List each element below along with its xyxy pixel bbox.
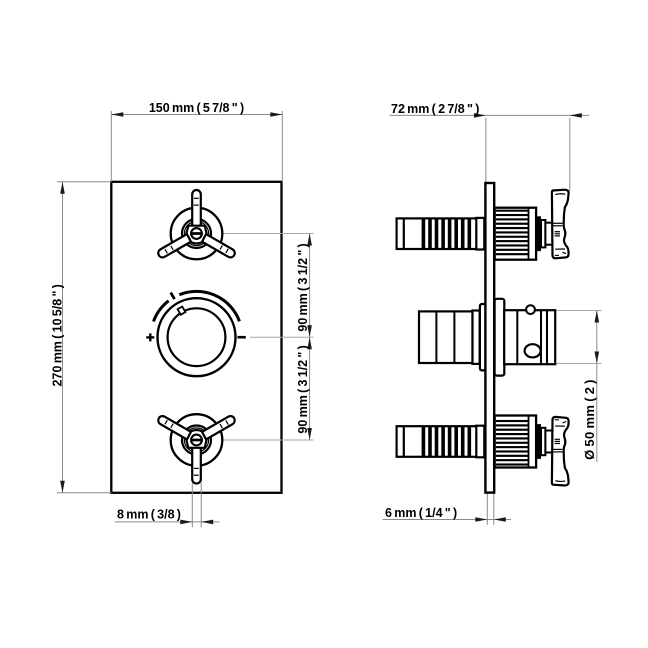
svg-text:6 mm ( 1/4 " ): 6 mm ( 1/4 " ) <box>385 506 457 520</box>
svg-text:90 mm ( 3 1/2 " ): 90 mm ( 3 1/2 " ) <box>296 243 310 331</box>
svg-text:Ø 50 mm ( 2 ): Ø 50 mm ( 2 ) <box>582 379 597 460</box>
svg-text:150 mm ( 5 7/8 " ): 150 mm ( 5 7/8 " ) <box>149 101 244 115</box>
svg-text:72 mm ( 2 7/8 " ): 72 mm ( 2 7/8 " ) <box>391 102 479 116</box>
svg-text:90 mm ( 3 1/2 " ): 90 mm ( 3 1/2 " ) <box>296 345 310 433</box>
svg-text:8 mm ( 3/8 ): 8 mm ( 3/8 ) <box>117 507 181 521</box>
svg-text:270 mm ( 10 5/8 " ): 270 mm ( 10 5/8 " ) <box>51 284 65 386</box>
